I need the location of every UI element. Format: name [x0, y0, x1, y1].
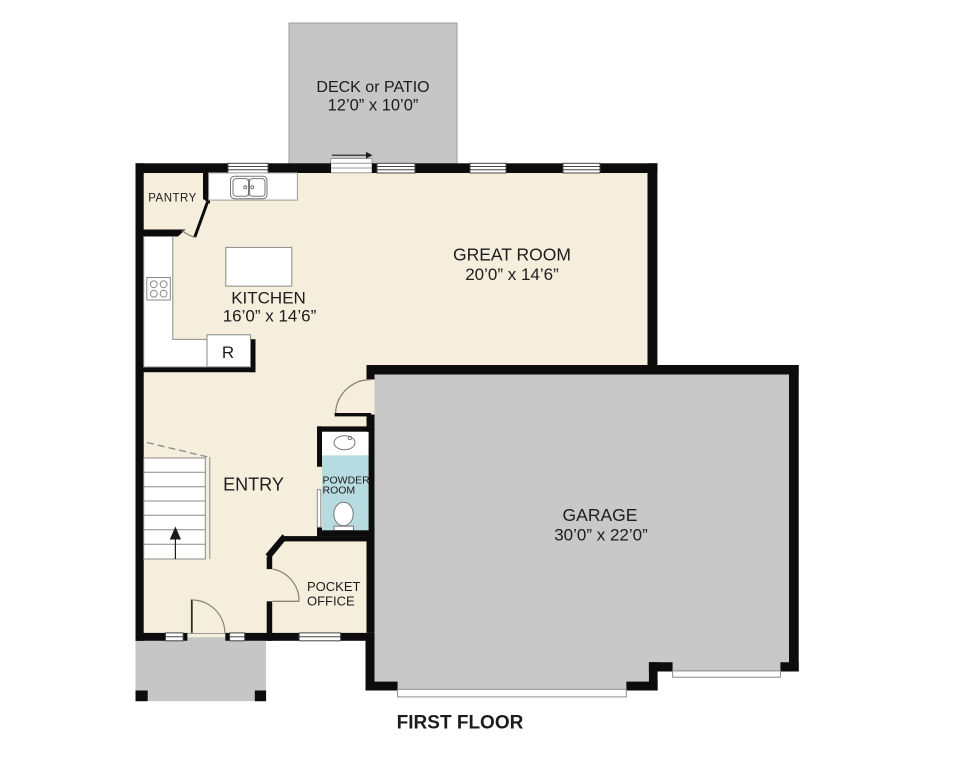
svg-text:30’0” x 22’0”: 30’0” x 22’0” [554, 526, 648, 545]
svg-text:12’0” x 10’0”: 12’0” x 10’0” [328, 97, 419, 115]
svg-text:20’0” x 14’6”: 20’0” x 14’6” [465, 265, 559, 284]
svg-text:16’0” x 14’6”: 16’0” x 14’6” [223, 307, 317, 326]
svg-text:GREAT ROOM: GREAT ROOM [453, 245, 571, 265]
svg-text:KITCHEN: KITCHEN [231, 289, 306, 308]
svg-text:PANTRY: PANTRY [148, 193, 197, 205]
svg-text:ROOM: ROOM [323, 484, 356, 496]
svg-text:R: R [222, 343, 234, 362]
svg-text:OFFICE: OFFICE [307, 593, 355, 608]
svg-text:ENTRY: ENTRY [223, 475, 284, 495]
svg-text:GARAGE: GARAGE [563, 505, 638, 525]
svg-text:FIRST FLOOR: FIRST FLOOR [397, 713, 524, 734]
svg-text:POCKET: POCKET [307, 579, 361, 594]
svg-text:DECK or PATIO: DECK or PATIO [316, 79, 429, 96]
